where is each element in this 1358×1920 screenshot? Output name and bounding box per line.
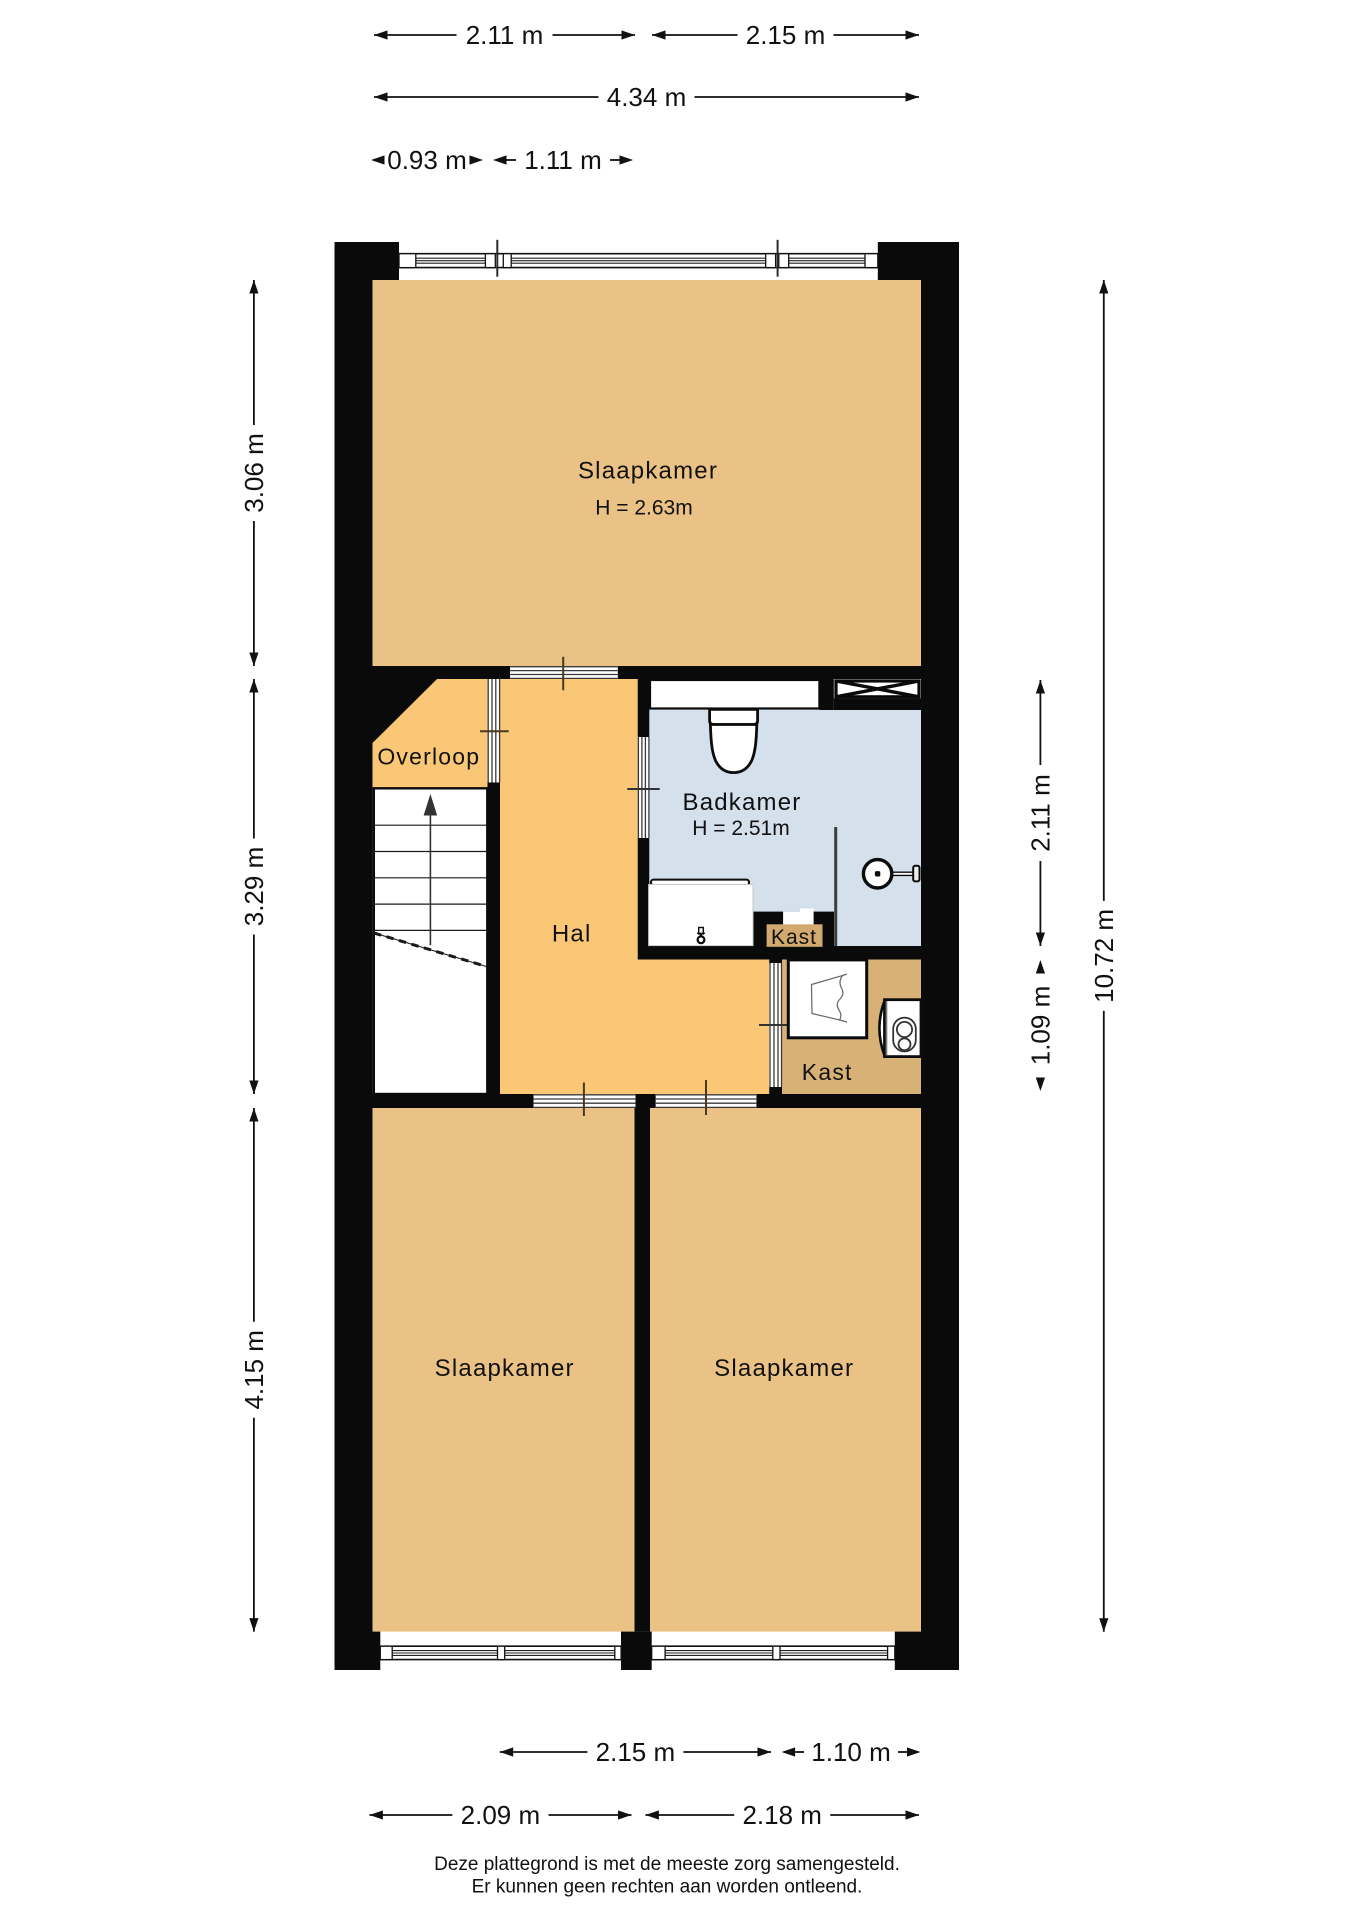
svg-text:3.29 m: 3.29 m: [239, 847, 269, 927]
svg-text:4.15 m: 4.15 m: [239, 1330, 269, 1410]
svg-text:2.11 m: 2.11 m: [466, 20, 544, 50]
svg-text:2.11 m: 2.11 m: [1026, 774, 1056, 852]
svg-text:2.15 m: 2.15 m: [746, 20, 826, 50]
svg-text:Slaapkamer: Slaapkamer: [578, 457, 718, 484]
svg-text:Hal: Hal: [552, 920, 592, 947]
svg-text:Slaapkamer: Slaapkamer: [435, 1355, 575, 1382]
svg-text:2.18 m: 2.18 m: [742, 1800, 822, 1830]
svg-text:Slaapkamer: Slaapkamer: [714, 1355, 854, 1382]
svg-text:1.11 m: 1.11 m: [524, 145, 602, 175]
svg-text:2.09 m: 2.09 m: [461, 1800, 541, 1830]
svg-text:Deze plattegrond is met de mee: Deze plattegrond is met de meeste zorg s…: [434, 1854, 900, 1875]
svg-text:2.15 m: 2.15 m: [596, 1737, 676, 1767]
svg-text:1.09 m: 1.09 m: [1026, 986, 1056, 1066]
svg-text:H = 2.63m: H = 2.63m: [595, 496, 692, 519]
svg-text:H = 2.51m: H = 2.51m: [692, 817, 789, 840]
svg-text:0.93 m: 0.93 m: [387, 145, 467, 175]
svg-text:1.10 m: 1.10 m: [811, 1737, 891, 1767]
svg-text:3.06 m: 3.06 m: [239, 433, 269, 513]
svg-text:4.34 m: 4.34 m: [607, 82, 687, 112]
svg-text:Kast: Kast: [802, 1059, 853, 1085]
svg-text:Kast: Kast: [771, 926, 817, 949]
svg-text:Badkamer: Badkamer: [683, 789, 802, 816]
svg-text:Overloop: Overloop: [377, 743, 480, 769]
svg-text:Er kunnen geen rechten aan wor: Er kunnen geen rechten aan worden ontlee…: [472, 1876, 863, 1897]
svg-text:10.72 m: 10.72 m: [1089, 909, 1119, 1003]
